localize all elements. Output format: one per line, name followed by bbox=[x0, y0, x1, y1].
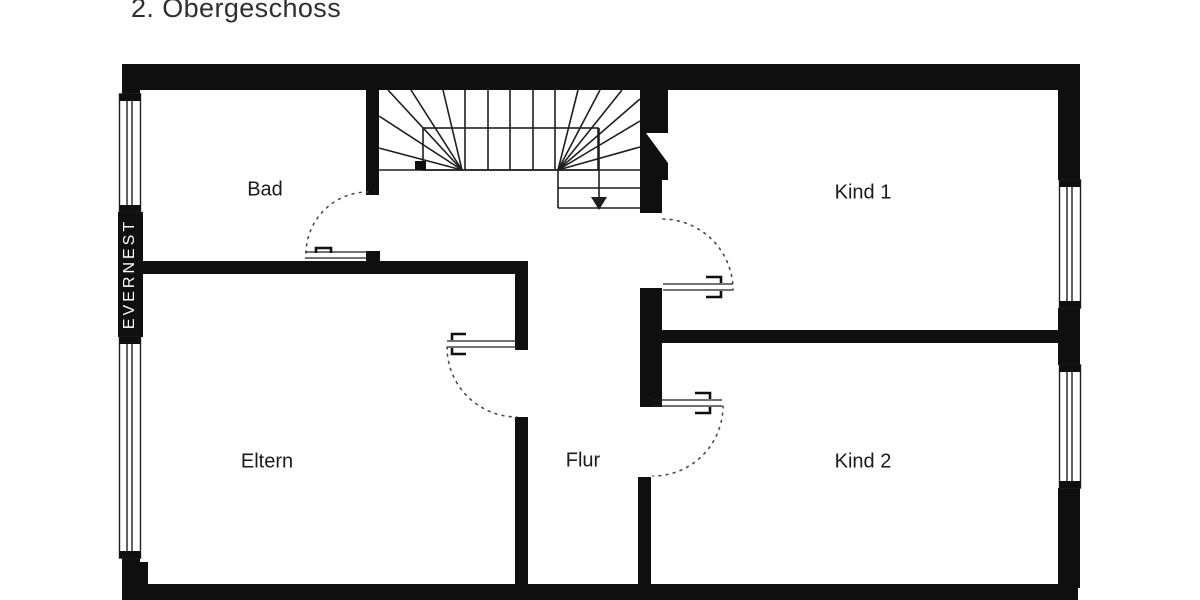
wall-stair-left bbox=[366, 90, 379, 195]
wall-left-corner-step bbox=[122, 562, 148, 586]
stair-winders-left bbox=[379, 90, 462, 170]
page-title: 2. Obergeschoss bbox=[131, 0, 341, 24]
door-kind2 bbox=[652, 393, 723, 476]
wall-flur-kind2-lower bbox=[638, 477, 651, 584]
brand-watermark: EVERNEST bbox=[121, 219, 139, 329]
door-eltern bbox=[447, 334, 517, 417]
door-eltern-swing-arc bbox=[447, 347, 517, 417]
door-kind2-handle-top bbox=[695, 393, 710, 399]
wall-left-corner-top bbox=[122, 64, 140, 96]
room-label-flur: Flur bbox=[566, 450, 600, 473]
door-eltern-handle-top bbox=[452, 334, 466, 340]
door-kind1 bbox=[663, 219, 733, 297]
room-label-kind1: Kind 1 bbox=[835, 182, 892, 205]
room-label-kind2: Kind 2 bbox=[835, 451, 892, 474]
door-kind1-handle-bottom bbox=[706, 291, 721, 297]
staircase bbox=[379, 90, 640, 210]
window-right-lower bbox=[1060, 365, 1081, 488]
floor-plan: 2. Obergeschoss Bad Kind 1 Eltern Flur K… bbox=[0, 0, 1200, 600]
door-kind1-swing-arc bbox=[663, 219, 733, 290]
door-eltern-handle-bottom bbox=[452, 348, 466, 354]
wall-stair-right-narrow bbox=[640, 180, 662, 213]
wall-outer-bottom bbox=[122, 584, 1078, 600]
room-label-eltern: Eltern bbox=[241, 451, 293, 474]
window-left-lower bbox=[120, 337, 141, 558]
wall-kind1-below-door bbox=[640, 288, 662, 330]
wall-above-kind2-door bbox=[640, 343, 662, 407]
door-kind1-handle-top bbox=[706, 277, 721, 283]
wall-bad-south bbox=[140, 261, 528, 274]
stair-headroom-marker bbox=[646, 133, 668, 163]
wall-outer-top bbox=[122, 64, 1078, 90]
window-left-upper bbox=[120, 94, 141, 212]
door-kind2-handle-bottom bbox=[695, 407, 710, 413]
stair-treads bbox=[465, 90, 555, 170]
wall-right-top bbox=[1058, 64, 1080, 180]
wall-eltern-flur-lower bbox=[515, 417, 528, 584]
door-bad bbox=[305, 192, 368, 258]
wall-eltern-flur-upper bbox=[515, 274, 528, 350]
stair-post bbox=[415, 161, 426, 170]
windows bbox=[120, 94, 1081, 558]
floor-plan-drawing bbox=[0, 0, 1200, 600]
wall-right-bottom bbox=[1058, 488, 1080, 588]
wall-bad-door-stub bbox=[366, 251, 380, 263]
room-label-bad: Bad bbox=[247, 179, 283, 202]
door-kind2-swing-arc bbox=[653, 406, 723, 476]
window-right-upper bbox=[1060, 180, 1081, 308]
wall-right-middle bbox=[1058, 308, 1080, 365]
wall-kind1-kind2-divider bbox=[640, 330, 1058, 343]
door-bad-swing-arc bbox=[306, 192, 368, 253]
